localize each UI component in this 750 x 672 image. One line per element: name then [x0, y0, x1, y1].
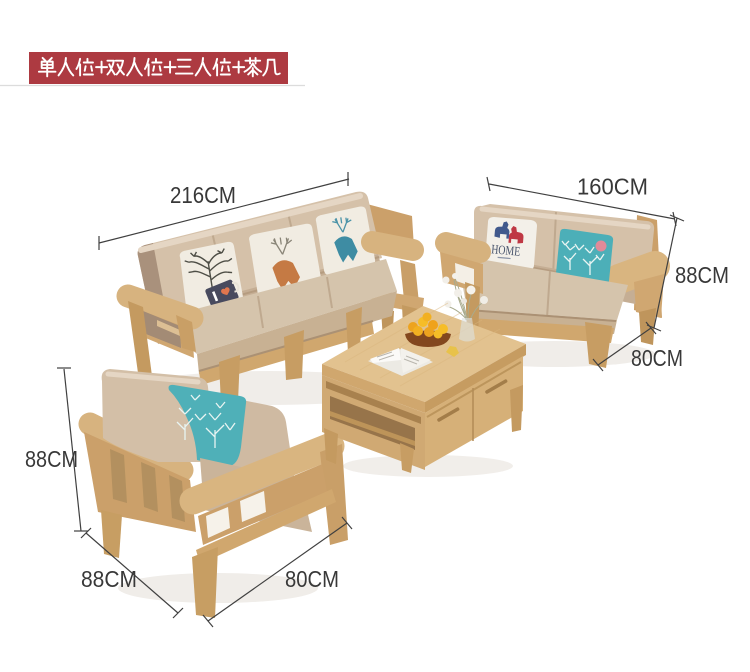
svg-text:88CM: 88CM	[81, 566, 137, 592]
svg-text:88CM: 88CM	[675, 262, 729, 288]
svg-text:160CM: 160CM	[577, 174, 648, 200]
svg-text:80CM: 80CM	[285, 566, 339, 592]
svg-text:80CM: 80CM	[631, 345, 683, 371]
svg-text:216CM: 216CM	[170, 182, 236, 208]
svg-text:88CM: 88CM	[25, 446, 78, 472]
svg-text:HOME: HOME	[491, 241, 521, 258]
